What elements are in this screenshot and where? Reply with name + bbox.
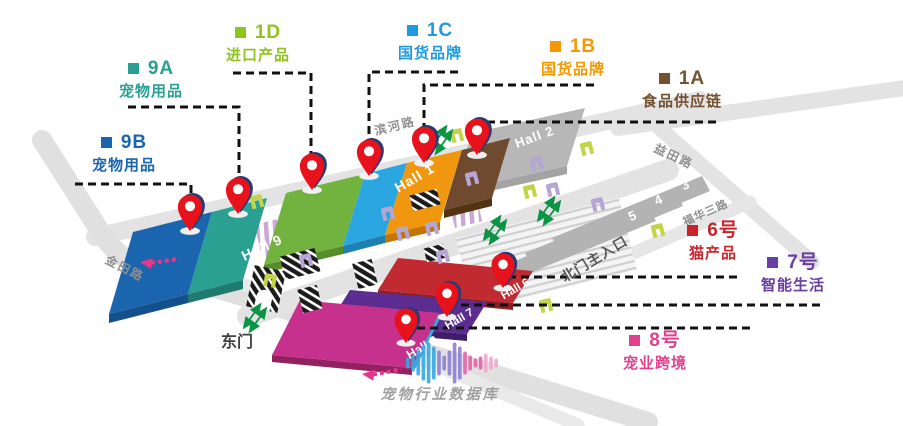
area-label-1a: 1A 食品供应链 bbox=[632, 68, 732, 110]
area-name: 宠物用品 bbox=[95, 83, 207, 100]
area-code: 1C bbox=[427, 20, 453, 41]
area-code: 1B bbox=[570, 36, 596, 57]
area-name: 宠业跨境 bbox=[613, 355, 697, 372]
area-name: 宠物用品 bbox=[58, 157, 190, 174]
road-binhe-label: 滨河路 bbox=[373, 113, 417, 138]
legend-square-icon bbox=[659, 73, 670, 84]
gate-icon-green bbox=[579, 141, 594, 157]
area-name: 国货品牌 bbox=[385, 45, 475, 62]
area-label-6: 6号 猫产品 bbox=[677, 220, 749, 262]
area-label-7: 7号 智能生活 bbox=[752, 252, 834, 294]
legend-square-icon bbox=[128, 63, 139, 74]
watermark-text: 宠物行业数据库 bbox=[381, 386, 500, 403]
area-label-1b: 1B 国货品牌 bbox=[528, 36, 618, 78]
area-name: 进口产品 bbox=[200, 47, 316, 64]
area-code: 6号 bbox=[707, 220, 739, 241]
area-label-8: 8号 宠业跨境 bbox=[613, 330, 697, 372]
legend-square-icon bbox=[767, 257, 778, 268]
leader-1d bbox=[233, 73, 311, 180]
gate-icon-green bbox=[449, 128, 464, 144]
area-code: 1A bbox=[679, 68, 705, 89]
area-code: 9A bbox=[148, 58, 174, 79]
area-code: 9B bbox=[121, 132, 147, 153]
area-code: 1D bbox=[255, 22, 281, 43]
area-label-9b: 9B 宠物用品 bbox=[58, 132, 190, 174]
area-label-9a: 9A 宠物用品 bbox=[95, 58, 207, 100]
legend-square-icon bbox=[687, 225, 698, 236]
legend-square-icon bbox=[101, 137, 112, 148]
gate-icon-green bbox=[522, 184, 537, 200]
area-code: 7号 bbox=[787, 252, 819, 273]
area-name: 食品供应链 bbox=[632, 93, 732, 110]
area-label-1d: 1D 进口产品 bbox=[200, 22, 316, 64]
legend-square-icon bbox=[550, 41, 561, 52]
area-name: 智能生活 bbox=[752, 277, 834, 294]
legend-square-icon bbox=[235, 27, 246, 38]
area-label-1c: 1C 国货品牌 bbox=[385, 20, 475, 62]
area-name: 猫产品 bbox=[677, 245, 749, 262]
east-gate-label: 东门 bbox=[221, 332, 253, 351]
area-name: 国货品牌 bbox=[528, 61, 618, 78]
legend-square-icon bbox=[629, 335, 640, 346]
expo-venue-map: Hall 9 Hall 1 Hall 2 3 4 5 Hall 6 Hall 7… bbox=[0, 0, 903, 426]
gate-icon-purple bbox=[545, 182, 560, 198]
area-code: 8号 bbox=[649, 330, 681, 351]
legend-square-icon bbox=[407, 25, 418, 36]
